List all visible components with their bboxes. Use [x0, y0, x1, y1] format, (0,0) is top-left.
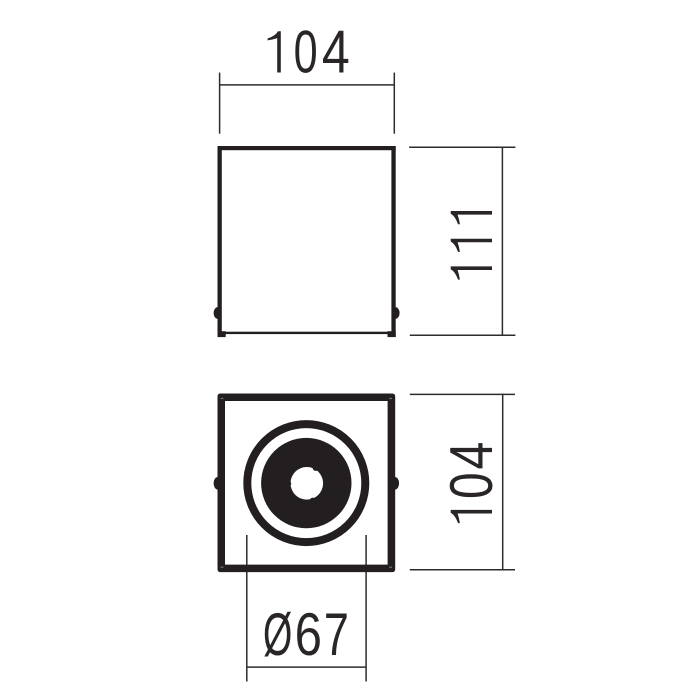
- svg-text:0: 0: [294, 20, 318, 87]
- svg-text:6: 6: [295, 600, 322, 668]
- svg-text:4: 4: [322, 18, 350, 85]
- svg-text:0: 0: [438, 472, 505, 499]
- svg-text:7: 7: [324, 602, 349, 669]
- svg-text:4: 4: [438, 442, 505, 470]
- svg-text:Ø: Ø: [263, 601, 292, 668]
